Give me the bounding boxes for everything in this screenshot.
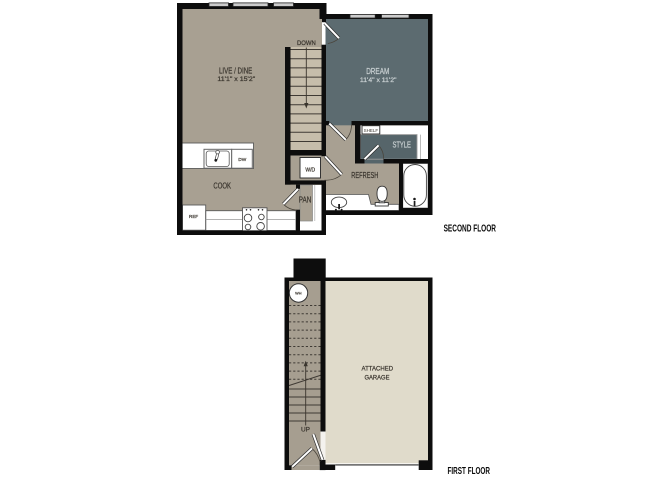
svg-text:W/D: W/D (305, 167, 315, 173)
svg-text:SHELF: SHELF (364, 128, 379, 133)
svg-text:DREAM: DREAM (366, 67, 389, 76)
svg-text:DW: DW (238, 157, 246, 163)
svg-text:ATTACHED: ATTACHED (362, 366, 394, 373)
svg-text:SECOND FLOOR: SECOND FLOOR (444, 223, 497, 234)
svg-text:STYLE: STYLE (392, 141, 411, 150)
svg-text:COOK: COOK (213, 181, 231, 190)
svg-text:PAN: PAN (299, 196, 312, 205)
svg-text:LIVE / DINE: LIVE / DINE (219, 67, 252, 76)
svg-text:WH: WH (295, 292, 302, 296)
svg-text:GARAGE: GARAGE (364, 375, 389, 382)
svg-text:REFRESH: REFRESH (351, 171, 378, 180)
svg-text:11'1" x 15'2": 11'1" x 15'2" (217, 76, 256, 83)
svg-text:FIRST FLOOR: FIRST FLOOR (448, 466, 491, 477)
svg-text:REF: REF (189, 214, 198, 219)
svg-text:11'4" x 11'2": 11'4" x 11'2" (360, 77, 397, 84)
svg-text:UP: UP (301, 427, 310, 434)
svg-text:DOWN: DOWN (297, 41, 316, 47)
